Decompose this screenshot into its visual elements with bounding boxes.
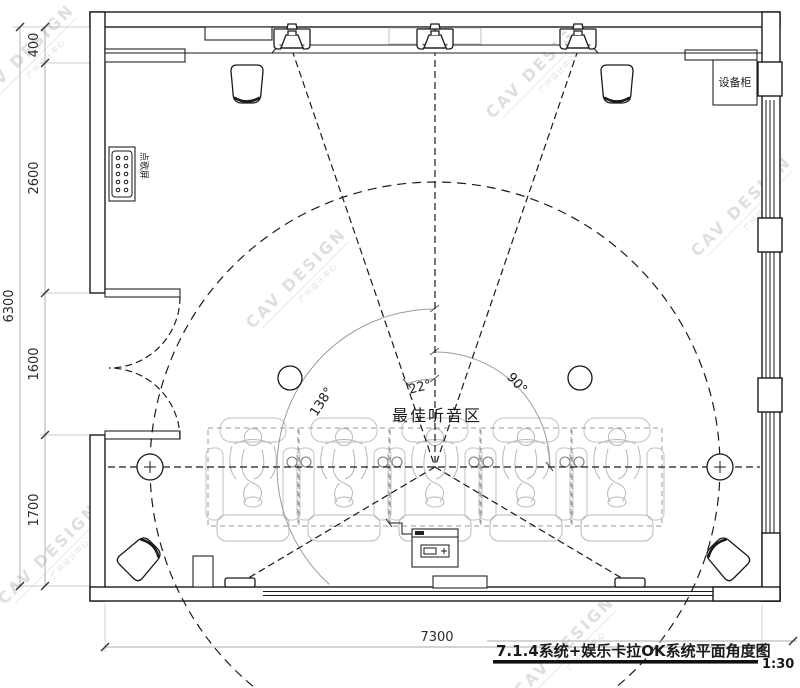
dimension-chains: 400 2600 1600 1700 6300 7300 [2,23,766,652]
recliner-seat [297,418,391,541]
watermark: CAV DESIGN 广州设计中心 [242,224,360,342]
ray-front-right [435,50,578,467]
cabinet-soffit [685,50,757,60]
wall-right [762,12,780,601]
wall-left-upper [90,12,105,293]
ray-rear-left [240,467,435,583]
floor-plan-drawing: CAV DESIGN 广州设计中心 CAV DESIGN 广州设计中心 CAV … [0,0,800,688]
corner-subwoofer-icon [702,533,751,582]
svg-text:CAV DESIGN: CAV DESIGN [0,500,102,608]
wall-left-lower [90,435,105,601]
song-screen-label: 点歌屏 [138,152,150,179]
ray-rear-right [435,467,630,583]
watermark: CAV DESIGN 广州设计中心 [0,0,88,118]
dim-6300: 6300 [2,289,17,322]
dim-7300: 7300 [420,630,453,645]
bottom-wall-block [433,576,487,588]
right-wall-pillar [758,62,782,96]
rear-surround-speaker-icon [615,578,645,587]
equipment-cabinet: 设备柜 [713,60,757,105]
corner-column [713,587,780,601]
height-speaker-icon [231,65,263,103]
corner-subwoofer-icon [115,533,164,582]
door-swing [109,368,180,439]
watermark: CAV DESIGN 广州设计中心 [687,152,800,270]
svg-text:CAV DESIGN: CAV DESIGN [482,14,590,122]
listening-zone-label: 最佳听音区 [392,406,482,425]
floor-plan-page: CAV DESIGN 广州设计中心 CAV DESIGN 广州设计中心 CAV … [0,0,800,688]
svg-text:CAV DESIGN: CAV DESIGN [242,224,350,332]
top-soffit [205,27,272,40]
door-swing [109,297,180,368]
right-wall-pillar [758,378,782,412]
height-speaker-icon [601,65,633,103]
rear-surround-speaker-icon [225,578,255,587]
dim-1700: 1700 [27,493,42,526]
angle-22-label: 22° [407,378,433,398]
recliner-seat [479,418,573,541]
front-left-speaker-icon [274,24,310,49]
floor-stand [193,556,213,587]
door-jamb [105,431,180,439]
equipment-cabinet-label: 设备柜 [719,75,752,89]
song-selection-panel: 点歌屏 [109,147,150,201]
door-jamb [105,289,180,297]
drawing-title: 7.1.4系统+娱乐卡拉OK系统平面角度图 [496,642,771,660]
dim-2600: 2600 [27,161,42,194]
angle-138-label: 138° [307,385,337,419]
wall-bottom [90,587,780,601]
room-walls [90,12,782,601]
dim-400: 400 [27,33,42,58]
right-wall-pillar [758,218,782,252]
dim-1600: 1600 [27,347,42,380]
angle-90-label: 90° [503,370,530,397]
top-left-soffit [105,49,185,62]
watermark: CAV DESIGN 广州设计中心 [510,592,628,688]
recliner-seat [206,418,300,541]
recliner-seat [570,418,664,541]
drawing-scale: 1:30 [762,657,794,672]
title-underline [493,660,758,664]
